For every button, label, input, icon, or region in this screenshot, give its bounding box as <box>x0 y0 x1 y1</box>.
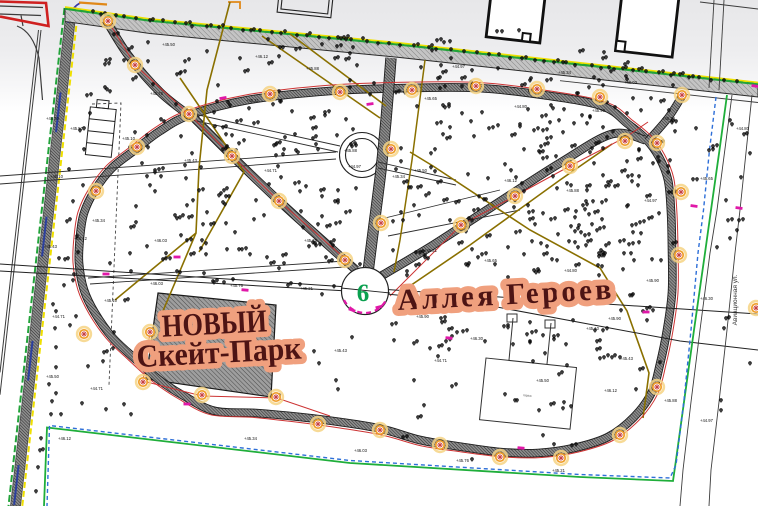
svg-text:+45.90: +45.90 <box>592 108 606 113</box>
svg-text:+45.43: +45.43 <box>44 244 58 249</box>
svg-text:+45.21: +45.21 <box>552 468 566 473</box>
svg-text:+46.03: +46.03 <box>150 281 164 286</box>
svg-text:+44.97: +44.97 <box>348 164 362 169</box>
svg-text:+45.43: +45.43 <box>334 348 348 353</box>
svg-text:+45.65: +45.65 <box>424 96 438 101</box>
svg-text:+45.50: +45.50 <box>414 168 428 173</box>
svg-text:+44.80: +44.80 <box>564 268 578 273</box>
svg-text:+45.76: +45.76 <box>230 283 244 288</box>
svg-text:+45.21: +45.21 <box>300 286 314 291</box>
svg-text:+45.50: +45.50 <box>162 42 176 47</box>
svg-text:+45.43: +45.43 <box>620 356 634 361</box>
svg-text:+44.71: +44.71 <box>52 314 66 319</box>
svg-text:+46.03: +46.03 <box>154 238 168 243</box>
svg-text:Авиационная ул.: Авиационная ул. <box>732 274 739 325</box>
svg-text:+44.71: +44.71 <box>90 386 104 391</box>
svg-text:+46.12: +46.12 <box>74 236 88 241</box>
svg-text:+46.30: +46.30 <box>470 336 484 341</box>
svg-text:+46.03: +46.03 <box>624 80 638 85</box>
svg-text:+45.88: +45.88 <box>664 398 678 403</box>
svg-text:+45.88: +45.88 <box>566 188 580 193</box>
svg-text:+45.90: +45.90 <box>646 278 660 283</box>
svg-text:+45.10: +45.10 <box>104 298 118 303</box>
svg-text:+45.34: +45.34 <box>92 218 106 223</box>
svg-text:+45.50: +45.50 <box>70 126 84 131</box>
svg-text:+45.10: +45.10 <box>122 136 136 141</box>
svg-text:+46.12: +46.12 <box>255 54 269 59</box>
svg-text:+45.21: +45.21 <box>424 248 438 253</box>
svg-text:+45.43: +45.43 <box>184 158 198 163</box>
svg-text:+44.97: +44.97 <box>700 418 714 423</box>
svg-text:+45.90: +45.90 <box>608 316 622 321</box>
svg-text:+44.71: +44.71 <box>434 358 448 363</box>
svg-text:+46.30: +46.30 <box>700 296 714 301</box>
svg-text:+46.12: +46.12 <box>58 436 72 441</box>
svg-text:+45.10: +45.10 <box>50 174 64 179</box>
svg-text:+45.65: +45.65 <box>484 258 498 263</box>
svg-text:+46.12: +46.12 <box>604 388 618 393</box>
svg-text:+45.65: +45.65 <box>700 176 714 181</box>
svg-text:+46.12: +46.12 <box>504 178 518 183</box>
svg-text:+45.76: +45.76 <box>456 458 470 463</box>
svg-text:+45.34: +45.34 <box>392 174 406 179</box>
svg-text:+44.71: +44.71 <box>264 168 278 173</box>
svg-text:+45.34: +45.34 <box>558 70 572 75</box>
svg-text:+45.88: +45.88 <box>306 66 320 71</box>
svg-text:+45.50: +45.50 <box>46 374 60 379</box>
svg-text:+46.30: +46.30 <box>46 116 60 121</box>
svg-text:+45.88: +45.88 <box>344 148 358 153</box>
svg-text:+45.50: +45.50 <box>536 378 550 383</box>
svg-text:+45.34: +45.34 <box>244 436 258 441</box>
svg-text:+45.76: +45.76 <box>150 91 164 96</box>
svg-text:+44.97: +44.97 <box>644 198 658 203</box>
svg-text:+46.03: +46.03 <box>354 448 368 453</box>
svg-text:+44.97: +44.97 <box>452 64 466 69</box>
svg-text:+44.80: +44.80 <box>736 126 750 131</box>
svg-text:6: 6 <box>357 280 370 307</box>
svg-text:+45.21: +45.21 <box>246 98 260 103</box>
svg-text:+45.76: +45.76 <box>304 238 318 243</box>
svg-text:+46.30: +46.30 <box>662 116 676 121</box>
svg-text:+45.10: +45.10 <box>586 326 600 331</box>
svg-text:+44.80: +44.80 <box>514 104 528 109</box>
